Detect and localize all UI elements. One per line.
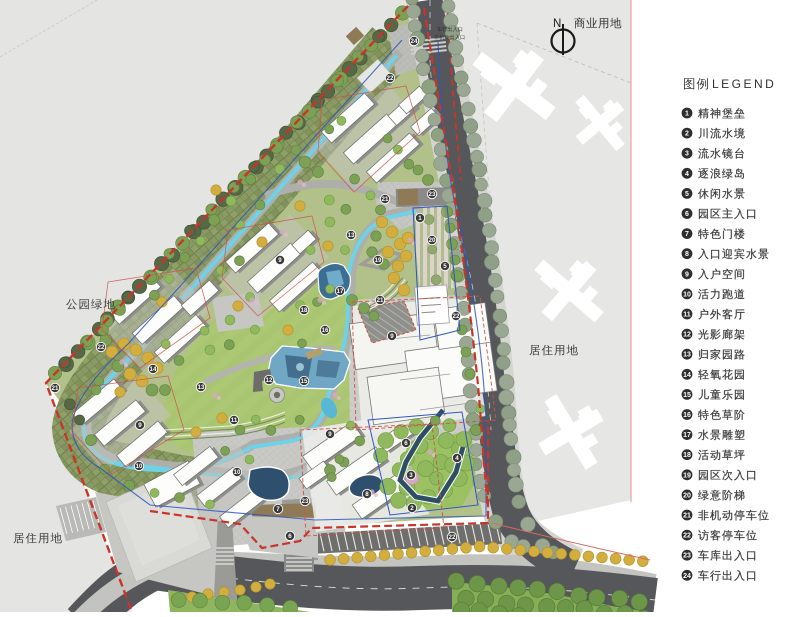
svg-text:3: 3	[409, 472, 413, 479]
svg-text:7: 7	[685, 231, 689, 238]
svg-text:11: 11	[683, 312, 691, 319]
svg-text:5: 5	[443, 263, 447, 270]
svg-text:7: 7	[276, 506, 280, 513]
svg-text:24: 24	[683, 573, 691, 580]
svg-text:16: 16	[683, 412, 691, 419]
svg-text:12: 12	[266, 377, 273, 384]
svg-text:3: 3	[685, 151, 689, 158]
svg-text:23: 23	[429, 191, 436, 198]
svg-text:21: 21	[382, 196, 389, 203]
svg-text:23: 23	[302, 498, 309, 505]
svg-text:4: 4	[685, 171, 689, 178]
svg-text:19: 19	[683, 472, 691, 479]
svg-text:13: 13	[348, 232, 355, 239]
svg-text:24: 24	[411, 38, 418, 45]
svg-text:15: 15	[683, 392, 691, 399]
svg-text:19: 19	[375, 257, 382, 264]
svg-text:21: 21	[52, 385, 59, 392]
svg-text:20: 20	[683, 492, 691, 499]
svg-text:23: 23	[683, 553, 691, 560]
svg-text:21: 21	[683, 513, 691, 520]
svg-text:14: 14	[150, 366, 157, 373]
svg-text:10: 10	[234, 469, 241, 476]
svg-text:9: 9	[685, 271, 689, 278]
svg-text:22: 22	[453, 313, 460, 320]
svg-text:6: 6	[685, 211, 689, 218]
svg-text:17: 17	[683, 432, 691, 439]
svg-text:8: 8	[365, 491, 369, 498]
svg-text:17: 17	[337, 288, 344, 295]
svg-text:22: 22	[449, 534, 456, 541]
svg-text:18: 18	[683, 452, 691, 459]
svg-text:1: 1	[418, 215, 422, 222]
svg-text:2: 2	[410, 505, 414, 512]
svg-text:14: 14	[683, 372, 691, 379]
svg-text:9: 9	[328, 431, 332, 438]
svg-text:20: 20	[429, 237, 436, 244]
svg-text:1: 1	[685, 111, 689, 118]
svg-text:8: 8	[685, 251, 689, 258]
svg-text:4: 4	[455, 455, 459, 462]
svg-text:16: 16	[322, 327, 329, 334]
svg-text:21: 21	[377, 297, 384, 304]
svg-text:13: 13	[683, 352, 691, 359]
svg-text:12: 12	[683, 332, 691, 339]
svg-text:22: 22	[387, 75, 394, 82]
svg-text:9: 9	[138, 422, 142, 429]
svg-text:5: 5	[685, 191, 689, 198]
svg-text:N: N	[553, 18, 561, 30]
svg-text:6: 6	[404, 440, 408, 447]
svg-text:10: 10	[136, 463, 143, 470]
svg-text:LEGEND: LEGEND	[712, 77, 776, 91]
svg-text:6: 6	[288, 533, 292, 540]
svg-text:9: 9	[278, 257, 282, 264]
svg-text:2: 2	[685, 131, 689, 138]
svg-text:13: 13	[198, 384, 205, 391]
svg-text:18: 18	[301, 307, 308, 314]
svg-text:9: 9	[390, 333, 394, 340]
svg-text:22: 22	[683, 533, 691, 540]
svg-text:15: 15	[301, 378, 308, 385]
svg-text:11: 11	[231, 417, 238, 424]
svg-text:22: 22	[98, 344, 105, 351]
svg-text:10: 10	[683, 291, 691, 298]
